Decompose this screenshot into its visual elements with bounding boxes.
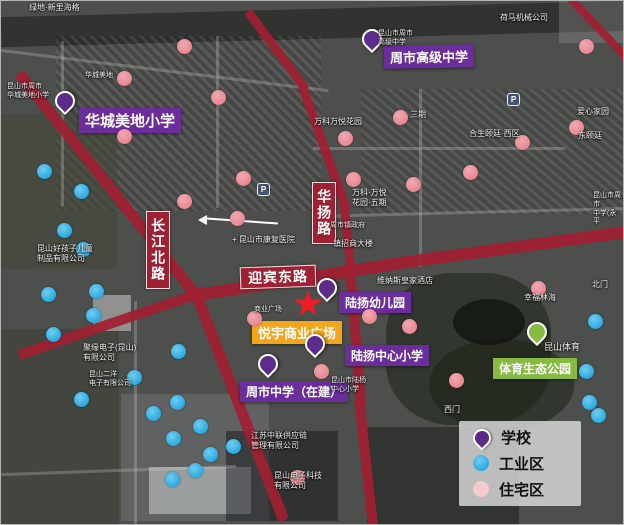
arrow-annotation-head bbox=[198, 215, 207, 225]
legend-row-industrial: 工业区 bbox=[459, 453, 581, 474]
map-text: 聚缘电子(昆山) 有限公司 bbox=[83, 343, 136, 363]
residential-dot bbox=[579, 39, 594, 54]
map-text: 昆山体育 bbox=[544, 342, 580, 353]
legend-school-label: 学校 bbox=[501, 427, 531, 448]
map-text: 华城美地 bbox=[85, 72, 113, 81]
residential-dot bbox=[247, 311, 262, 326]
map-texture bbox=[1, 1, 624, 47]
residential-dot bbox=[117, 129, 132, 144]
map-text: 爱心家园 bbox=[577, 107, 609, 117]
road-top-right bbox=[566, 0, 624, 62]
industrial-dot bbox=[86, 308, 101, 323]
industrial-dot bbox=[74, 392, 89, 407]
residential-dot bbox=[346, 172, 361, 187]
industrial-dot bbox=[57, 223, 72, 238]
residential-dot bbox=[463, 165, 478, 180]
residential-dot bbox=[569, 120, 584, 135]
legend-residential-label: 住宅区 bbox=[499, 479, 544, 500]
road-huayang-south2 bbox=[354, 398, 378, 525]
industrial-dot bbox=[188, 463, 203, 478]
minor-street bbox=[134, 301, 137, 525]
residential-dot bbox=[393, 110, 408, 125]
residential-dot bbox=[177, 39, 192, 54]
road-label-yingbin: 迎宾东路 bbox=[240, 265, 317, 290]
industrial-dot bbox=[37, 164, 52, 179]
parking-icon: P bbox=[257, 183, 270, 196]
industrial-dot bbox=[170, 395, 185, 410]
map-text: 三期 bbox=[410, 110, 426, 120]
industrial-dot bbox=[226, 439, 241, 454]
map-texture bbox=[1, 114, 117, 269]
industrial-dot bbox=[588, 314, 603, 329]
school-pin-icon bbox=[469, 425, 494, 450]
industrial-dot bbox=[46, 327, 61, 342]
industrial-dot bbox=[127, 370, 142, 385]
residential-dot-icon bbox=[473, 481, 489, 497]
legend-row-school: 学校 bbox=[459, 427, 581, 448]
road-huayang-north bbox=[244, 9, 309, 92]
road-changjiang-north bbox=[15, 70, 201, 300]
industrial-dot bbox=[203, 447, 218, 462]
map-text: 万科·万悦 花园·五期 bbox=[352, 188, 387, 208]
residential-dot bbox=[211, 90, 226, 105]
poi-label-luyang-kindergarten: 陆扬幼儿园 bbox=[339, 292, 411, 313]
road-label-changjiang: 长江北路 bbox=[146, 211, 170, 289]
residential-dot bbox=[236, 171, 251, 186]
residential-dot bbox=[290, 470, 305, 485]
parking-icon: P bbox=[507, 93, 520, 106]
school-pin-zhoushi_middle bbox=[254, 350, 282, 378]
map-text: + 昆山市康复医院 bbox=[232, 235, 295, 245]
industrial-dot bbox=[165, 472, 180, 487]
industrial-dot bbox=[171, 344, 186, 359]
poi-label-sports-park: 体育生态公园 bbox=[493, 358, 577, 379]
map-text: 合生颐廷·西区 bbox=[469, 129, 520, 139]
residential-dot bbox=[515, 135, 530, 150]
minor-street bbox=[313, 207, 623, 218]
residential-dot bbox=[449, 373, 464, 388]
poi-label-huacheng-primary: 华城美地小学 bbox=[79, 108, 181, 133]
road-huayang-south1 bbox=[345, 267, 366, 404]
road-huayang-junction bbox=[340, 203, 356, 272]
minor-street bbox=[419, 89, 422, 267]
residential-dot bbox=[338, 131, 353, 146]
residential-dot bbox=[314, 364, 329, 379]
industrial-dot bbox=[166, 431, 181, 446]
minor-street bbox=[216, 36, 219, 208]
residential-dot bbox=[531, 281, 546, 296]
residential-dot bbox=[117, 71, 132, 86]
map-text: 西门 bbox=[444, 405, 460, 415]
map-legend: 学校 工业区 住宅区 bbox=[459, 421, 581, 506]
industrial-dot-icon bbox=[473, 455, 489, 471]
residential-dot bbox=[406, 177, 421, 192]
industrial-dot bbox=[89, 284, 104, 299]
poi-label-zhoushi-highschool: 周市高级中学 bbox=[384, 44, 474, 69]
industrial-dot bbox=[193, 419, 208, 434]
poi-label-yueyu-plaza: 悦宇商业广场 bbox=[252, 321, 342, 344]
residential-dot bbox=[177, 194, 192, 209]
map-text: 维纳斯皇家酒店 bbox=[377, 276, 433, 286]
map-texture bbox=[453, 299, 525, 345]
road-label-huayang: 华扬路 bbox=[312, 182, 336, 244]
poi-label-luyang-primary: 陆扬中心小学 bbox=[345, 345, 429, 366]
industrial-dot bbox=[579, 364, 594, 379]
legend-industrial-label: 工业区 bbox=[499, 453, 544, 474]
road-yingbin-east bbox=[428, 226, 624, 265]
residential-dot bbox=[402, 319, 417, 334]
map-text: 绿地·新里海格 bbox=[29, 3, 80, 13]
legend-row-residential: 住宅区 bbox=[459, 479, 581, 500]
industrial-dot bbox=[76, 242, 91, 257]
poi-label-zhoushi-middle: 周市中学（在建） bbox=[240, 381, 348, 402]
park-pin-sports_park bbox=[523, 318, 551, 346]
school-pin-zhoushi_gaoji bbox=[358, 25, 386, 53]
industrial-dot bbox=[74, 184, 89, 199]
map-text: 北门 bbox=[592, 280, 608, 290]
residential-dot bbox=[362, 309, 377, 324]
map-texture bbox=[1, 329, 119, 525]
map-text: 昆山二洋 电子有限公司 bbox=[89, 371, 131, 389]
industrial-dot bbox=[591, 408, 606, 423]
industrial-dot bbox=[41, 287, 56, 302]
industrial-dot bbox=[146, 406, 161, 421]
residential-dot bbox=[230, 211, 245, 226]
map-texture bbox=[361, 89, 623, 214]
map-text: 昆山市周市 中学(永平 bbox=[593, 192, 623, 227]
satellite-map: 长江北路 华扬路 迎宾东路 华城美地小学 周市高级中学 陆扬幼儿园 陆扬中心小学… bbox=[0, 0, 624, 525]
map-text: 荷马机械公司 bbox=[500, 13, 548, 23]
